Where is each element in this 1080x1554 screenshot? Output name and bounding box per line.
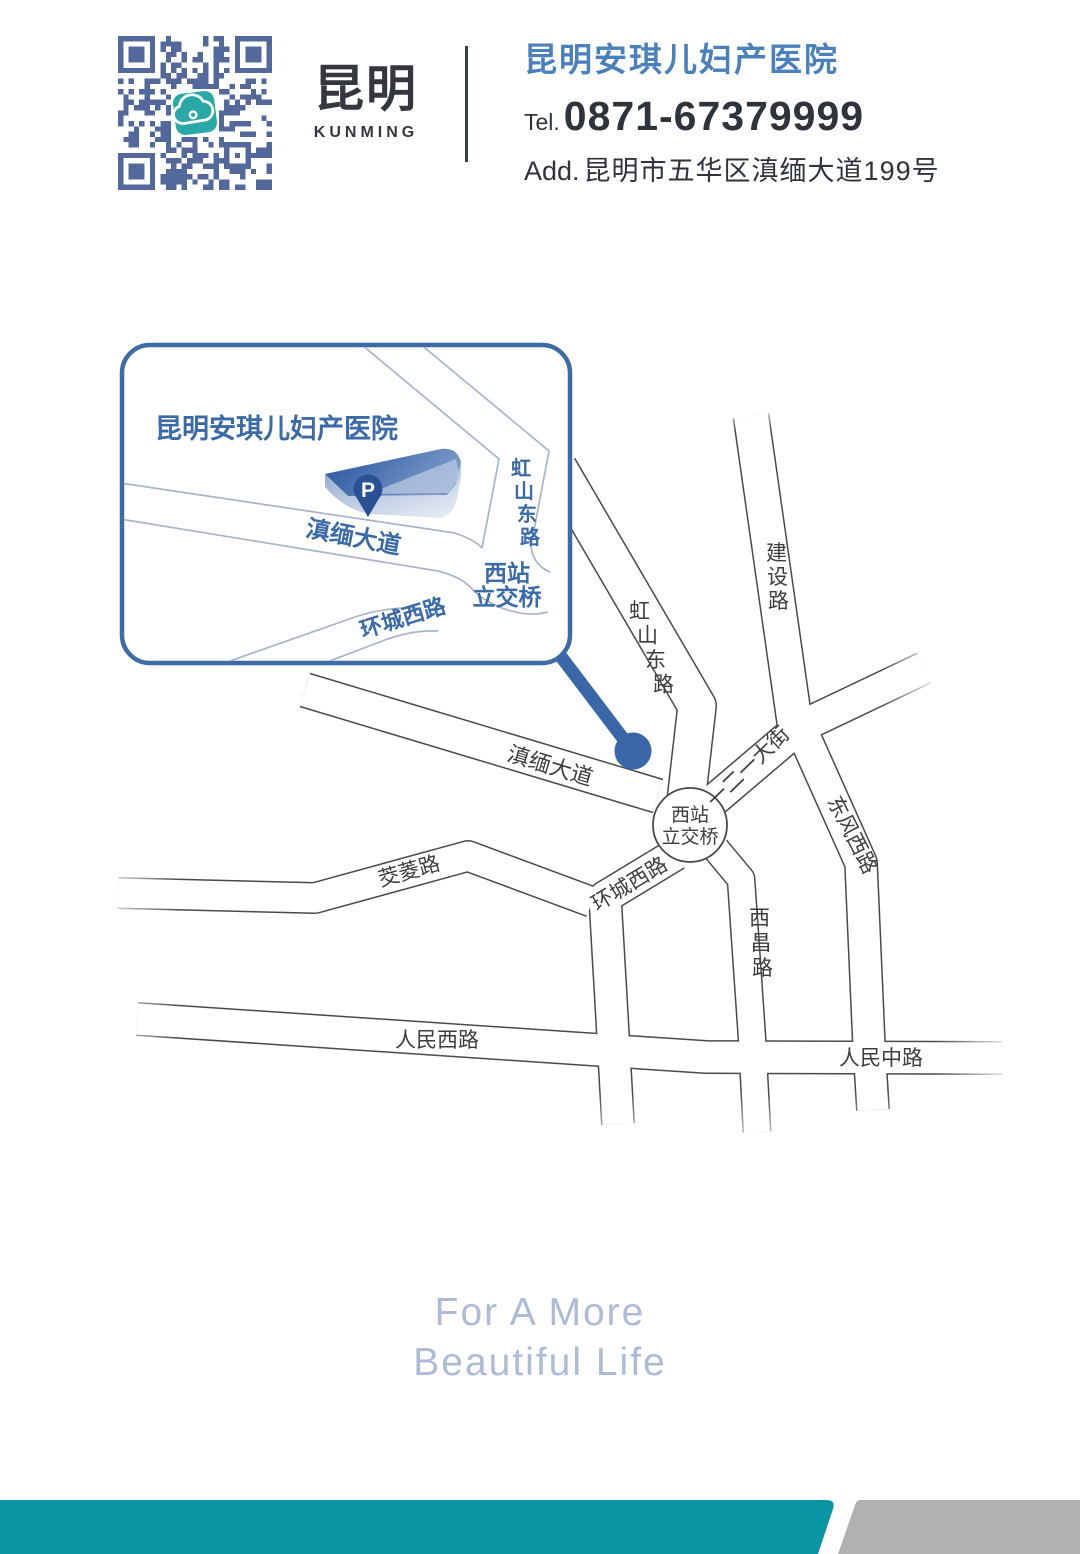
road-label-xizhan-1: 西站	[671, 804, 709, 826]
slogan: For A More Beautiful Life	[0, 1288, 1080, 1388]
slogan-line-1: For A More	[0, 1288, 1080, 1338]
road-label-renmin-west: 人民西路	[395, 1029, 479, 1052]
footer-gray-bar	[838, 1500, 1080, 1554]
fade-renmin-east	[935, 1034, 1017, 1086]
road-label-xichang: 西昌路	[749, 907, 773, 980]
slogan-line-2: Beautiful Life	[0, 1338, 1080, 1388]
road-label-renmin-middle: 人民中路	[839, 1047, 923, 1070]
inset-title: 昆明安琪儿妇产医院	[155, 413, 398, 444]
parking-letter: P	[361, 479, 375, 502]
road-label-yieryi: 一二一大街	[703, 723, 795, 812]
inset-road-label-xizhan-1: 西站	[484, 560, 530, 586]
fade-jianshe-top	[722, 402, 802, 430]
page: 昆明 KUNMING 昆明安琪儿妇产医院 Tel. 0871-67379999 …	[0, 0, 1080, 1554]
footer-teal-bar	[0, 1500, 834, 1554]
hospital-location-marker	[615, 733, 652, 770]
road-label-xizhan-2: 立交桥	[661, 826, 718, 848]
fade-121-northeast	[882, 642, 940, 708]
inset-road-label-xizhan-2: 立交桥	[473, 584, 543, 610]
road-label-jianshe: 建设路	[766, 542, 789, 613]
callout-leader-line	[556, 650, 625, 741]
inset-detail-map: P 昆明安琪儿妇产医院 滇缅大道 虹山东路 西站 立交桥 环城西路	[120, 338, 570, 692]
fade-map-bottom	[572, 1092, 897, 1158]
fade-map-left	[92, 858, 180, 1090]
